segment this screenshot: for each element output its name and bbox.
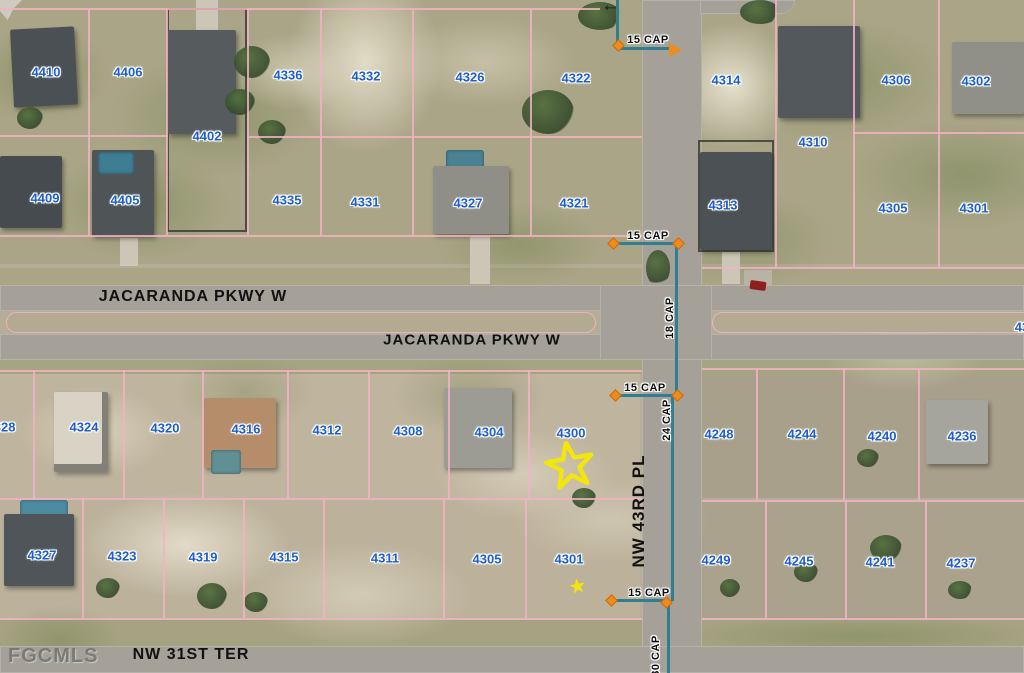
subject-star-icon [541, 437, 599, 495]
subject-marker-overlay [0, 0, 1024, 673]
aerial-parcel-map: ← 44104406440243364332432643224409440543… [0, 0, 1024, 673]
small-star-icon [567, 576, 587, 596]
mls-watermark: FGCMLS [8, 645, 98, 668]
